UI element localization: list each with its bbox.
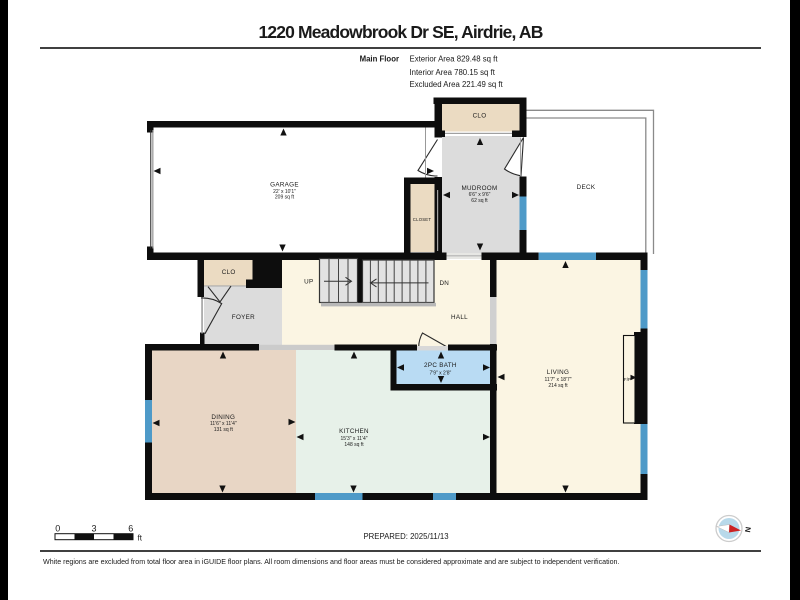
svg-text:PREPARED: 2025/11/13: PREPARED: 2025/11/13 — [363, 532, 448, 541]
svg-text:GARAGE: GARAGE — [270, 182, 299, 189]
svg-text:148 sq ft: 148 sq ft — [344, 442, 364, 448]
svg-text:LIVING: LIVING — [547, 369, 569, 376]
svg-text:Interior Area 780.15 sq ft: Interior Area 780.15 sq ft — [410, 68, 496, 77]
svg-text:DINING: DINING — [211, 414, 235, 421]
svg-text:62 sq ft: 62 sq ft — [471, 198, 488, 204]
svg-text:DECK: DECK — [577, 184, 596, 191]
svg-text:FOYER: FOYER — [232, 314, 255, 321]
svg-text:HALL: HALL — [451, 314, 468, 321]
svg-text:7'9" x 2'8": 7'9" x 2'8" — [429, 370, 451, 376]
svg-text:CLO: CLO — [222, 269, 236, 276]
svg-text:UP: UP — [304, 279, 313, 286]
svg-text:1220 Meadowbrook Dr SE, Airdri: 1220 Meadowbrook Dr SE, Airdrie, AB — [258, 22, 542, 42]
svg-text:214 sq ft: 214 sq ft — [548, 383, 568, 389]
svg-text:CLOSET: CLOSET — [413, 217, 432, 222]
svg-text:MUDROOM: MUDROOM — [461, 185, 497, 192]
svg-text:DN: DN — [439, 280, 449, 287]
svg-text:Main Floor: Main Floor — [360, 55, 399, 64]
svg-text:F/P: F/P — [624, 377, 631, 382]
svg-text:3: 3 — [91, 523, 96, 533]
svg-text:White regions are excluded fro: White regions are excluded from total fl… — [43, 558, 620, 566]
svg-text:KITCHEN: KITCHEN — [339, 428, 369, 435]
svg-text:209 sq ft: 209 sq ft — [275, 195, 295, 201]
svg-text:ft: ft — [138, 533, 143, 542]
svg-text:CLO: CLO — [473, 112, 487, 119]
svg-text:2PC BATH: 2PC BATH — [424, 362, 457, 369]
svg-text:6: 6 — [128, 523, 133, 533]
svg-text:131 sq ft: 131 sq ft — [214, 427, 234, 433]
svg-text:Exterior Area 829.48 sq ft: Exterior Area 829.48 sq ft — [410, 55, 499, 64]
svg-text:Excluded Area 221.49 sq ft: Excluded Area 221.49 sq ft — [410, 80, 504, 89]
svg-text:0: 0 — [55, 523, 60, 533]
